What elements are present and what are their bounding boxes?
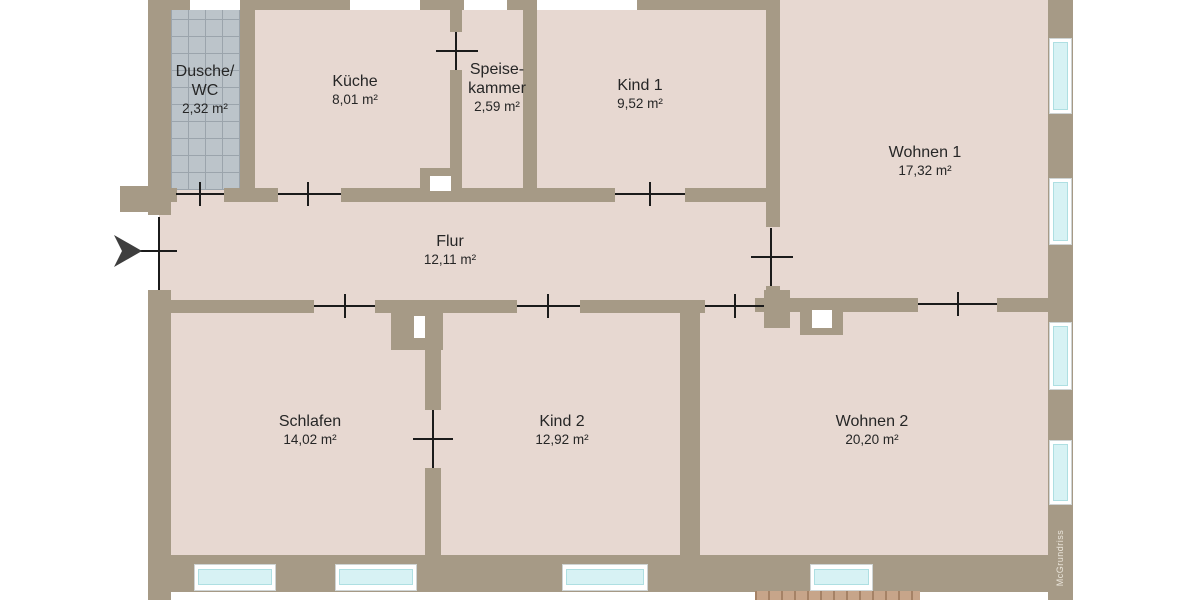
room-label-kind-1: Kind 1 9,52 m²	[578, 76, 702, 113]
entrance-opening	[140, 215, 159, 290]
window-right-1-glass	[1053, 42, 1068, 110]
window-top-1	[190, 0, 247, 10]
wall-kind2-wohnen2	[680, 313, 700, 555]
door-entrance-line	[158, 217, 160, 290]
wall-flur-top-c	[341, 188, 615, 202]
watermark-text: McGrundriss	[1055, 512, 1069, 600]
door-wohnen2-tick	[734, 294, 736, 318]
room-area: 17,32 m²	[853, 162, 997, 180]
room-area: 9,52 m²	[578, 95, 702, 113]
wall-wohnen1-wohnen2-b	[997, 298, 1048, 312]
window-bottom-2-glass	[339, 569, 413, 585]
wall-flur-top-d	[685, 188, 766, 202]
room-name: Kind 2	[498, 412, 626, 431]
door-wohnen1-wohnen2-tick	[957, 292, 959, 316]
window-bottom-1-glass	[198, 569, 272, 585]
door-kind1-tick	[649, 182, 651, 206]
window-top-2	[350, 0, 420, 10]
floor-plan: Dusche/ WC 2,32 m² Küche 8,01 m² Speise-…	[0, 0, 1200, 600]
shaft-kueche-niche	[430, 176, 451, 191]
wall-flur-top-a	[171, 188, 177, 202]
wall-flur-bottom-a	[171, 300, 314, 313]
room-label-dusche-wc: Dusche/ WC 2,32 m²	[155, 62, 255, 118]
room-name: Kind 1	[578, 76, 702, 95]
window-right-4-glass	[1053, 444, 1068, 501]
room-name: Wohnen 2	[798, 412, 946, 431]
room-label-wohnen-2: Wohnen 2 20,20 m²	[798, 412, 946, 449]
room-area: 2,59 m²	[442, 98, 552, 116]
room-area: 12,11 m²	[388, 251, 512, 269]
window-top-4	[537, 0, 637, 10]
room-name-line2: WC	[192, 82, 219, 99]
wall-flur-bottom-c	[580, 300, 705, 313]
room-area: 2,32 m²	[155, 100, 255, 118]
room-name: Speise-	[470, 61, 524, 78]
wall-flur-top-b	[224, 188, 278, 202]
window-bottom-4-glass	[814, 569, 869, 585]
wall-kueche-speise-upper	[450, 0, 462, 32]
wood-deck	[755, 591, 920, 600]
door-schlafen-tick	[344, 294, 346, 318]
room-area: 14,02 m²	[238, 431, 382, 449]
wall-schlafen-kind2-lower	[425, 468, 441, 555]
door-dusche-tick	[199, 182, 201, 206]
door-kueche-tick	[307, 182, 309, 206]
door-schlafen-kind2-tick	[413, 438, 453, 440]
wall-kind1-wohnen1	[766, 0, 780, 227]
room-name-line2: kammer	[468, 80, 526, 97]
window-right-2-glass	[1053, 182, 1068, 241]
room-name: Schlafen	[238, 412, 382, 431]
door-kind2-tick	[547, 294, 549, 318]
shaft-wohnen-niche	[812, 310, 832, 328]
door-wohnen1-tick	[751, 256, 793, 258]
room-name: Dusche/	[176, 63, 235, 80]
room-label-speisekammer: Speise- kammer 2,59 m²	[442, 60, 552, 116]
window-bottom-3-glass	[566, 569, 644, 585]
door-speisekammer-tick	[436, 50, 478, 52]
window-top-3	[464, 0, 507, 10]
room-name: Flur	[388, 232, 512, 251]
room-label-wohnen-1: Wohnen 1 17,32 m²	[853, 143, 997, 180]
room-name: Küche	[295, 72, 415, 91]
entrance-arrow-icon	[114, 235, 142, 267]
room-label-kueche: Küche 8,01 m²	[295, 72, 415, 109]
room-name: Wohnen 1	[853, 143, 997, 162]
room-label-schlafen: Schlafen 14,02 m²	[238, 412, 382, 449]
room-area: 8,01 m²	[295, 91, 415, 109]
room-label-flur: Flur 12,11 m²	[388, 232, 512, 269]
door-kueche-line	[278, 193, 341, 195]
wall-schlafen-kind2-upper	[425, 313, 441, 410]
room-area: 20,20 m²	[798, 431, 946, 449]
room-label-kind-2: Kind 2 12,92 m²	[498, 412, 626, 449]
window-right-3-glass	[1053, 326, 1068, 386]
wall-entrance-pier	[120, 186, 171, 212]
room-area: 12,92 m²	[498, 431, 626, 449]
wall-left-lower	[148, 290, 171, 600]
